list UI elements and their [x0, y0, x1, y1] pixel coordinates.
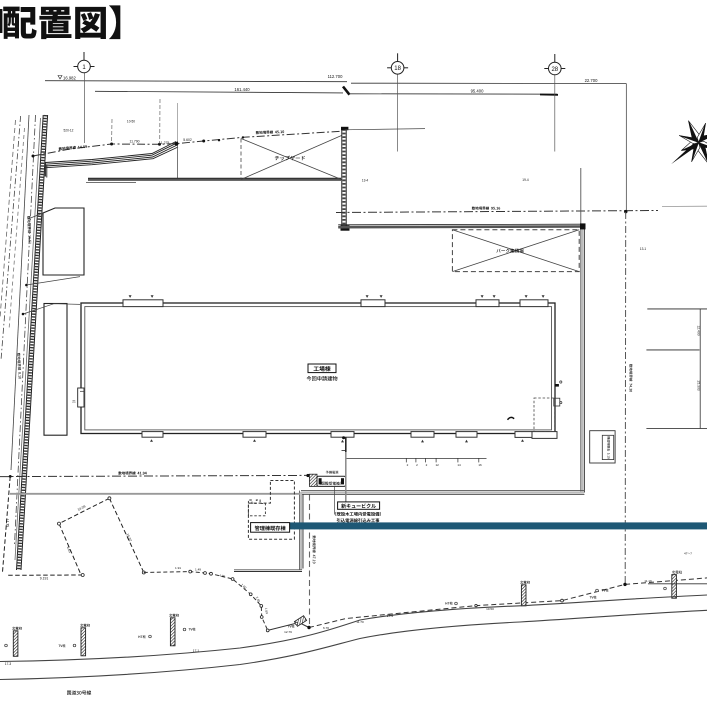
svg-text:6.70: 6.70	[323, 626, 329, 630]
svg-text:520-12: 520-12	[64, 129, 74, 133]
svg-text:25.303: 25.303	[697, 381, 701, 391]
svg-text:9.191: 9.191	[40, 577, 49, 581]
svg-text:12.79: 12.79	[284, 630, 292, 634]
svg-text:15.02: 15.02	[125, 533, 132, 542]
svg-text:2: 2	[416, 463, 418, 467]
svg-text:12.400: 12.400	[697, 325, 701, 335]
svg-text:1.275: 1.275	[161, 141, 170, 145]
svg-text:13-1: 13-1	[640, 247, 647, 251]
svg-text:16.982: 16.982	[63, 76, 76, 81]
svg-text:11.790: 11.790	[129, 140, 139, 144]
svg-text:2: 2	[426, 463, 428, 467]
svg-text:22.700: 22.700	[585, 78, 598, 83]
svg-text:16: 16	[478, 463, 482, 467]
svg-text:17-4: 17-4	[387, 614, 394, 618]
svg-text:14: 14	[457, 463, 461, 467]
svg-text:112.700: 112.700	[328, 74, 343, 79]
svg-text:11.19: 11.19	[644, 579, 652, 583]
svg-text:1.91: 1.91	[175, 566, 181, 570]
svg-text:12: 12	[436, 463, 440, 467]
svg-text:4.96: 4.96	[219, 573, 226, 578]
svg-text:5.602: 5.602	[183, 138, 192, 142]
svg-text:47°~7: 47°~7	[684, 552, 692, 556]
svg-text:2.65: 2.65	[255, 596, 261, 603]
svg-text:13-4: 13-4	[362, 179, 369, 183]
svg-text:17-3: 17-3	[5, 662, 12, 666]
svg-text:17-1: 17-1	[193, 649, 200, 653]
svg-text:10-50: 10-50	[127, 120, 135, 124]
svg-text:1.63: 1.63	[264, 608, 269, 615]
svg-text:19-4: 19-4	[522, 178, 529, 182]
svg-text:18: 18	[394, 66, 401, 72]
svg-text:28: 28	[551, 67, 558, 73]
svg-text:1.49: 1.49	[195, 568, 201, 572]
svg-text:14.09: 14.09	[77, 504, 86, 511]
svg-text:95.400: 95.400	[471, 88, 484, 93]
svg-text:161.440: 161.440	[234, 87, 250, 92]
svg-text:1.60: 1.60	[240, 583, 247, 590]
svg-text:2: 2	[407, 463, 409, 467]
svg-text:21: 21	[72, 400, 76, 404]
